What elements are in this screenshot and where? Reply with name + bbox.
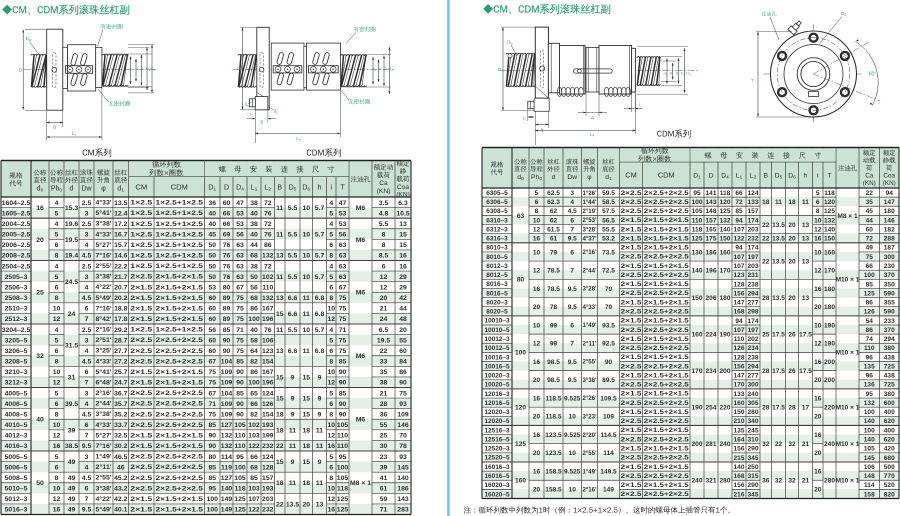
svg-text:82: 82: [250, 411, 258, 418]
svg-text:190: 190: [720, 331, 731, 338]
svg-text:10: 10: [302, 205, 310, 212]
svg-text:6: 6: [85, 486, 89, 493]
svg-text:M8 × 1: M8 × 1: [837, 213, 858, 220]
svg-text:2×1.5: 2×1.5: [130, 380, 153, 387]
svg-text:107: 107: [734, 254, 745, 261]
svg-text:2×2.5: 2×2.5: [621, 208, 643, 215]
svg-text:27.7: 27.7: [114, 348, 128, 355]
svg-text:Ca: Ca: [865, 173, 874, 180]
svg-text:1×2.5: 1×2.5: [130, 327, 153, 334]
svg-text:16: 16: [814, 286, 822, 293]
svg-text:12.4: 12.4: [114, 210, 128, 217]
svg-text:85: 85: [339, 359, 347, 366]
svg-text:4005–5: 4005–5: [5, 390, 28, 397]
svg-text:67: 67: [236, 284, 244, 291]
svg-text:40: 40: [208, 221, 216, 228]
svg-text:89: 89: [223, 316, 231, 323]
svg-text:2×1.5+2×1.5: 2×1.5+2×1.5: [156, 305, 204, 312]
svg-text:8: 8: [382, 242, 386, 249]
svg-text:53: 53: [236, 221, 244, 228]
svg-text:140: 140: [824, 226, 835, 233]
svg-text:5: 5: [816, 190, 820, 197]
svg-text:24: 24: [68, 311, 76, 318]
svg-text:8: 8: [329, 295, 333, 302]
svg-text:168: 168: [734, 309, 745, 316]
svg-text:2°11': 2°11': [583, 340, 597, 347]
svg-text:8: 8: [329, 359, 333, 366]
svg-text:2×1.5: 2×1.5: [130, 295, 153, 302]
svg-text:16: 16: [814, 395, 822, 402]
svg-text:141: 141: [706, 190, 717, 197]
svg-text:125: 125: [824, 208, 835, 215]
svg-text:125: 125: [515, 441, 526, 448]
svg-text:277: 277: [748, 373, 759, 380]
svg-text:160: 160: [692, 331, 703, 338]
svg-text:66: 66: [250, 401, 258, 408]
svg-text:109: 109: [397, 411, 409, 418]
svg-text:10: 10: [533, 322, 541, 329]
svg-text:19.5: 19.5: [65, 237, 79, 244]
svg-text:2×2.5: 2×2.5: [130, 422, 153, 429]
svg-text:2×1.5+2×1.5: 2×1.5+2×1.5: [644, 427, 690, 434]
svg-text:32: 32: [36, 353, 44, 360]
svg-text:12: 12: [327, 496, 335, 503]
svg-text:8.5: 8.5: [379, 253, 389, 260]
svg-text:50: 50: [208, 253, 216, 260]
svg-text:133: 133: [734, 391, 745, 398]
svg-text:85: 85: [735, 208, 743, 215]
svg-text:10010–5: 10010–5: [484, 327, 509, 334]
svg-text:60: 60: [208, 337, 216, 344]
svg-text:6: 6: [55, 242, 59, 249]
svg-text:110: 110: [692, 217, 703, 224]
svg-text:5: 5: [55, 337, 59, 344]
svg-text:400: 400: [884, 409, 895, 416]
svg-text:68: 68: [250, 253, 258, 260]
svg-text:680: 680: [884, 455, 895, 462]
svg-text:145: 145: [864, 455, 875, 462]
svg-text:6: 6: [535, 199, 539, 206]
svg-text:24.5: 24.5: [65, 279, 79, 286]
svg-text:35: 35: [380, 369, 388, 376]
svg-text:2×1.5+2×1.5: 2×1.5+2×1.5: [156, 284, 204, 291]
svg-text:20: 20: [399, 327, 407, 334]
svg-text:132: 132: [262, 253, 274, 260]
svg-text:107: 107: [734, 226, 745, 233]
svg-text:3: 3: [85, 232, 89, 239]
svg-text:4°22': 4°22': [96, 495, 113, 503]
svg-text:6312–3: 6312–3: [486, 226, 508, 233]
svg-text:6.8: 6.8: [315, 311, 325, 318]
svg-text:5010–5: 5010–5: [5, 486, 28, 493]
svg-text:72: 72: [264, 263, 272, 270]
svg-text:M10 × 1: M10 × 1: [836, 277, 860, 284]
svg-text:20: 20: [814, 304, 822, 311]
svg-text:28: 28: [762, 368, 770, 375]
svg-text:58.5: 58.5: [602, 199, 615, 206]
svg-text:132: 132: [824, 217, 835, 224]
svg-text:85: 85: [866, 281, 874, 288]
svg-text:29: 29: [399, 284, 407, 291]
svg-text:231: 231: [748, 272, 759, 279]
svg-text:75: 75: [236, 306, 244, 313]
svg-text:71: 71: [339, 327, 347, 334]
svg-text:4°33': 4°33': [582, 304, 597, 311]
svg-text:75: 75: [339, 295, 347, 302]
svg-text:125: 125: [337, 507, 349, 514]
svg-text:90: 90: [339, 380, 347, 387]
svg-text:4°33': 4°33': [96, 357, 113, 365]
svg-text:157: 157: [706, 217, 717, 224]
svg-text:8010–3: 8010–3: [486, 245, 508, 252]
svg-text:53: 53: [208, 284, 216, 291]
svg-text:21.7: 21.7: [114, 274, 128, 281]
svg-text:345: 345: [748, 491, 759, 498]
svg-text:7°16': 7°16': [96, 251, 113, 259]
svg-text:240: 240: [720, 441, 731, 448]
svg-text:156: 156: [734, 482, 745, 489]
svg-text:78.5: 78.5: [547, 286, 560, 293]
svg-text:7: 7: [85, 316, 89, 323]
svg-text:35.7: 35.7: [114, 401, 128, 408]
svg-text:61.5: 61.5: [547, 226, 560, 233]
svg-text:2×1.5: 2×1.5: [621, 245, 643, 252]
svg-text:5°41': 5°41': [96, 209, 113, 217]
svg-text:300: 300: [748, 382, 759, 389]
svg-text:102: 102: [262, 274, 274, 281]
svg-text:2×1.5+2×1.5: 2×1.5+2×1.5: [644, 464, 690, 471]
svg-text:4°22': 4°22': [96, 283, 113, 291]
svg-text:109.5: 109.5: [600, 395, 617, 402]
svg-text:5°27': 5°27': [96, 241, 113, 249]
svg-text:135: 135: [864, 363, 875, 370]
svg-text:22: 22: [775, 441, 783, 448]
svg-text:294: 294: [884, 336, 895, 343]
svg-text:22: 22: [866, 190, 874, 197]
svg-text:2×2.5: 2×2.5: [130, 454, 153, 461]
svg-text:2×2.5+2×2.5: 2×2.5+2×2.5: [644, 473, 690, 480]
svg-text:3°28': 3°28': [582, 226, 597, 233]
svg-text:10: 10: [533, 217, 541, 224]
svg-text:196: 196: [262, 380, 274, 387]
svg-text:63: 63: [236, 242, 244, 249]
svg-text:5008–5: 5008–5: [5, 475, 28, 482]
svg-text:420: 420: [884, 446, 895, 453]
svg-text:90: 90: [399, 380, 407, 387]
svg-text:4016–3: 4016–3: [5, 443, 28, 450]
svg-text:345: 345: [748, 455, 759, 462]
svg-text:8012–5: 8012–5: [486, 272, 508, 279]
svg-text:2512–3: 2512–3: [5, 316, 28, 323]
svg-text:6: 6: [329, 284, 333, 291]
svg-text:8: 8: [329, 253, 333, 260]
svg-text:2×2.5: 2×2.5: [130, 337, 153, 344]
svg-text:10010–3: 10010–3: [484, 318, 509, 325]
svg-text:126: 126: [262, 401, 274, 408]
svg-text:18: 18: [302, 480, 310, 487]
svg-text:16: 16: [327, 507, 335, 514]
svg-text:20: 20: [533, 377, 541, 384]
svg-text:2006–2.5: 2006–2.5: [2, 242, 31, 249]
svg-text:3204–2.5: 3204–2.5: [2, 327, 31, 334]
svg-text:2°16': 2°16': [96, 326, 113, 334]
svg-text:280: 280: [824, 478, 835, 485]
svg-text:11: 11: [276, 274, 283, 281]
svg-text:2×1.5+2×1.5: 2×1.5+2×1.5: [644, 281, 690, 288]
svg-text:71: 71: [208, 401, 216, 408]
svg-text:12: 12: [814, 226, 822, 233]
svg-text:2×1.5+2×1.5: 2×1.5+2×1.5: [156, 496, 204, 503]
svg-text:M10 × 1: M10 × 1: [836, 478, 860, 485]
svg-text:B: B: [53, 125, 56, 130]
svg-text:10: 10: [302, 253, 310, 260]
svg-text:46: 46: [117, 464, 125, 471]
svg-text:6: 6: [329, 401, 333, 408]
svg-text:3°38': 3°38': [96, 220, 113, 228]
svg-text:2×1.5: 2×1.5: [621, 263, 643, 270]
svg-text:190: 190: [824, 322, 835, 329]
svg-text:56: 56: [236, 232, 244, 239]
svg-text:10: 10: [302, 232, 310, 239]
svg-text:54: 54: [866, 318, 874, 325]
svg-text:76: 76: [264, 210, 272, 217]
svg-text:114: 114: [221, 454, 232, 461]
svg-text:75: 75: [236, 295, 244, 302]
svg-text:140: 140: [397, 475, 409, 482]
svg-text:2×2.5+2×2.5: 2×2.5+2×2.5: [644, 345, 690, 352]
svg-text:φ: φ: [587, 174, 592, 181]
svg-text:3°23': 3°23': [582, 414, 597, 421]
svg-text:4: 4: [329, 221, 333, 228]
svg-text:2×1.5: 2×1.5: [130, 305, 153, 312]
svg-text:(KN): (KN): [883, 180, 896, 187]
svg-text:2×1.5: 2×1.5: [621, 336, 643, 343]
svg-text:20: 20: [814, 377, 822, 384]
svg-text:70: 70: [605, 286, 613, 293]
svg-text:50: 50: [208, 242, 216, 249]
svg-text:2°16': 2°16': [96, 389, 113, 397]
svg-text:8: 8: [816, 208, 820, 215]
svg-text:2×1.5+2×1.5: 2×1.5+2×1.5: [644, 245, 690, 252]
svg-text:4: 4: [55, 263, 59, 270]
svg-text:2×2.5: 2×2.5: [130, 390, 153, 397]
svg-text:61: 61: [380, 486, 388, 493]
svg-text:5: 5: [55, 454, 59, 461]
svg-text:6.6: 6.6: [288, 348, 298, 355]
svg-text:2×2.5+2×2.5: 2×2.5+2×2.5: [156, 337, 204, 344]
svg-text:18: 18: [276, 427, 284, 434]
svg-text:5.7: 5.7: [315, 274, 325, 281]
svg-text:2.5: 2.5: [82, 327, 92, 334]
svg-text:106: 106: [262, 337, 274, 344]
svg-text:98.5: 98.5: [547, 359, 560, 366]
svg-text:76: 76: [223, 253, 231, 260]
svg-text:105: 105: [337, 422, 349, 429]
svg-text:128: 128: [734, 281, 745, 288]
svg-text:86: 86: [866, 300, 874, 307]
svg-text:2°55': 2°55': [96, 474, 113, 482]
svg-text:2×2.5+2×2.5: 2×2.5+2×2.5: [156, 422, 204, 429]
svg-text:80: 80: [517, 277, 525, 284]
svg-text:9.525: 9.525: [564, 468, 581, 475]
svg-text:2005–2.5: 2005–2.5: [2, 232, 31, 239]
svg-text:38: 38: [250, 200, 258, 207]
svg-text:2×2.5: 2×2.5: [130, 411, 153, 418]
svg-text:170: 170: [734, 382, 745, 389]
svg-text:118: 118: [692, 226, 703, 233]
svg-text:d: d: [379, 67, 381, 71]
svg-text:149: 149: [603, 487, 614, 494]
svg-text:187: 187: [884, 245, 895, 252]
svg-text:18: 18: [302, 443, 310, 450]
svg-text:232: 232: [262, 507, 274, 514]
svg-text:17.8: 17.8: [114, 316, 128, 323]
svg-text:M6: M6: [356, 417, 366, 424]
svg-text:17.5: 17.5: [799, 331, 812, 338]
svg-text:5.5: 5.5: [379, 221, 389, 228]
svg-text:60: 60: [208, 316, 216, 323]
svg-text:2×1.5+2×1.5: 2×1.5+2×1.5: [644, 217, 690, 224]
svg-text:90: 90: [605, 359, 613, 366]
svg-text:12: 12: [533, 341, 541, 348]
svg-text:2×1.5+2×1.5: 2×1.5+2×1.5: [644, 299, 690, 306]
svg-text:190: 190: [692, 405, 703, 412]
svg-text:2°16': 2°16': [582, 487, 597, 494]
svg-text:12516–5: 12516–5: [484, 436, 509, 443]
svg-text:147: 147: [884, 199, 895, 206]
svg-text:71: 71: [380, 507, 388, 514]
svg-text:125: 125: [234, 496, 246, 503]
svg-text:2×1.5+2×1.5: 2×1.5+2×1.5: [644, 318, 690, 325]
svg-text:160: 160: [515, 478, 526, 485]
svg-text:281: 281: [706, 441, 717, 448]
svg-text:154: 154: [262, 411, 274, 418]
svg-text:20: 20: [788, 258, 796, 265]
svg-text:49: 49: [68, 459, 76, 466]
svg-text:107: 107: [734, 327, 745, 334]
svg-text:120: 120: [720, 199, 731, 206]
svg-text:220: 220: [824, 405, 835, 412]
svg-text:2°55': 2°55': [582, 450, 597, 457]
svg-text:157: 157: [748, 208, 759, 215]
svg-text:5: 5: [55, 210, 59, 217]
svg-text:25: 25: [36, 290, 44, 297]
svg-text:110: 110: [734, 336, 745, 343]
svg-text:2×1.5: 2×1.5: [621, 235, 643, 242]
svg-text:118: 118: [234, 486, 245, 493]
svg-text:75: 75: [339, 337, 347, 344]
svg-text:32: 32: [788, 441, 796, 448]
svg-text:2°16': 2°16': [582, 249, 597, 256]
svg-text:72: 72: [264, 221, 272, 228]
svg-text:Dw: Dw: [567, 174, 577, 181]
svg-text:d: d: [670, 72, 672, 76]
svg-text:(KN): (KN): [396, 192, 410, 199]
svg-text:7: 7: [570, 268, 574, 275]
svg-text:3°38': 3°38': [96, 484, 113, 492]
svg-text:9.525: 9.525: [564, 395, 581, 402]
svg-text:10: 10: [569, 487, 577, 494]
svg-text:3.5: 3.5: [379, 200, 389, 207]
svg-text:199: 199: [262, 433, 274, 440]
svg-text:70: 70: [605, 304, 613, 311]
svg-text:5: 5: [329, 210, 333, 217]
svg-text:1×2.5+1×2.5: 1×2.5+1×2.5: [156, 253, 204, 260]
svg-text:20.2: 20.2: [114, 295, 128, 302]
svg-text:105: 105: [234, 475, 246, 482]
svg-text:10016–3: 10016–3: [484, 354, 509, 361]
svg-text:90: 90: [223, 348, 231, 355]
svg-text:9.5: 9.5: [568, 377, 577, 384]
svg-text:2×1.5+2×1.5: 2×1.5+2×1.5: [156, 316, 204, 323]
svg-text:2506–3: 2506–3: [5, 284, 28, 291]
svg-text:2×1.5: 2×1.5: [130, 507, 153, 514]
svg-text:167: 167: [262, 369, 274, 376]
svg-text:1×2.5+1×2.5: 1×2.5+1×2.5: [156, 221, 204, 228]
svg-text:6: 6: [329, 348, 333, 355]
svg-text:105: 105: [337, 475, 349, 482]
svg-text:4.5: 4.5: [82, 411, 92, 418]
svg-text:6.3: 6.3: [398, 200, 408, 207]
svg-text:17.5: 17.5: [772, 331, 785, 338]
svg-text:2×2.5+2×2.5: 2×2.5+2×2.5: [156, 454, 204, 461]
svg-text:203: 203: [748, 226, 759, 233]
svg-text:39: 39: [68, 427, 76, 434]
svg-text:90: 90: [339, 401, 347, 408]
svg-text:2°20': 2°20': [582, 432, 597, 439]
svg-text:200: 200: [692, 441, 703, 448]
svg-text:125: 125: [692, 236, 703, 243]
svg-text:20: 20: [36, 237, 44, 244]
svg-text:13.5: 13.5: [772, 258, 785, 265]
svg-text:5.7: 5.7: [315, 205, 325, 212]
svg-text:67: 67: [208, 390, 216, 397]
svg-text:12: 12: [380, 274, 388, 281]
svg-text:72.5: 72.5: [602, 268, 615, 275]
svg-text:5.7: 5.7: [315, 327, 325, 334]
svg-text:4: 4: [570, 199, 574, 206]
svg-text:22: 22: [762, 258, 770, 265]
svg-text:86: 86: [866, 327, 874, 334]
svg-text:96: 96: [866, 373, 874, 380]
svg-text:45.2: 45.2: [114, 475, 128, 482]
svg-text:φ: φ: [101, 185, 106, 192]
svg-text:93: 93: [399, 401, 407, 408]
svg-text:122: 122: [248, 443, 260, 450]
svg-text:2×1.5+2×1.5: 2×1.5+2×1.5: [644, 445, 690, 452]
svg-text:78: 78: [550, 304, 558, 311]
svg-text:2×2.5: 2×2.5: [621, 327, 643, 334]
svg-text:15: 15: [399, 242, 407, 249]
svg-text:10: 10: [814, 322, 822, 329]
svg-text:2.5: 2.5: [82, 200, 92, 207]
svg-text:820: 820: [884, 491, 895, 498]
svg-text:1×2.5: 1×2.5: [130, 242, 153, 249]
svg-text:125: 125: [337, 496, 349, 503]
svg-text:6: 6: [55, 284, 59, 291]
svg-text:400: 400: [884, 427, 895, 434]
svg-text:12: 12: [327, 380, 335, 387]
svg-text:104: 104: [221, 390, 233, 397]
svg-text:25: 25: [762, 331, 770, 338]
svg-text:158: 158: [864, 491, 875, 498]
svg-text:2×2.5: 2×2.5: [621, 345, 643, 352]
svg-text:2×1.5: 2×1.5: [130, 496, 153, 503]
svg-text:85: 85: [208, 422, 216, 429]
svg-text:196: 196: [706, 268, 717, 275]
svg-text:5°41': 5°41': [96, 368, 113, 376]
svg-text:103: 103: [248, 486, 260, 493]
